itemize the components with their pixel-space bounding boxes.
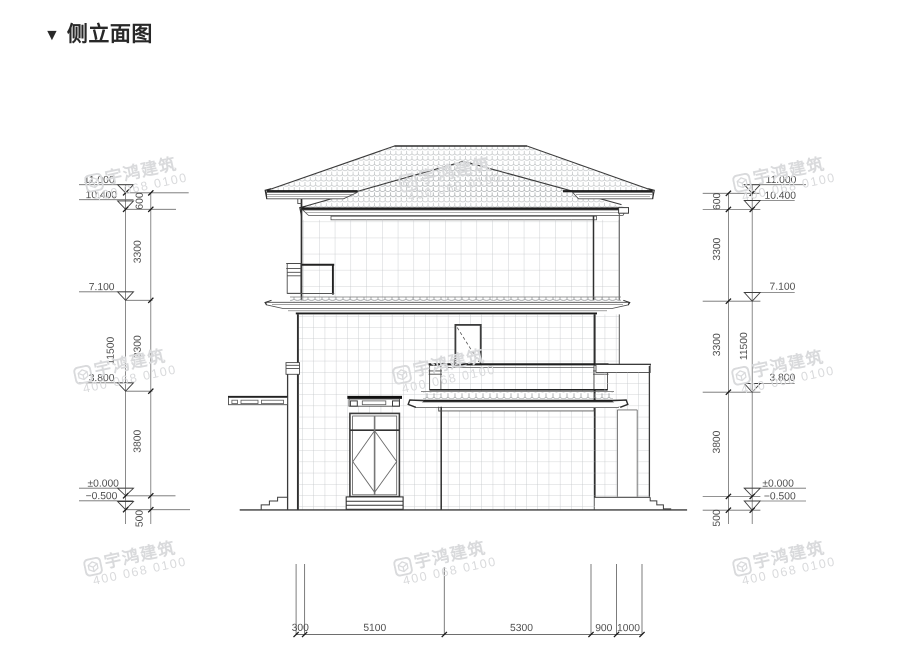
svg-text:3800: 3800 <box>133 430 144 453</box>
svg-text:3800: 3800 <box>712 430 723 453</box>
svg-text:±0.000: ±0.000 <box>762 479 794 490</box>
svg-text:±0.000: ±0.000 <box>87 479 119 490</box>
svg-text:600: 600 <box>712 193 723 210</box>
svg-text:500: 500 <box>712 509 723 526</box>
svg-text:3300: 3300 <box>712 237 723 260</box>
svg-text:−0.500: −0.500 <box>764 491 796 502</box>
svg-text:500: 500 <box>135 510 146 527</box>
svg-text:300: 300 <box>292 623 309 634</box>
svg-text:5100: 5100 <box>363 623 386 634</box>
svg-text:3300: 3300 <box>133 335 144 358</box>
svg-text:11500: 11500 <box>739 332 750 360</box>
svg-text:1000: 1000 <box>617 623 640 634</box>
svg-text:900: 900 <box>595 623 612 634</box>
svg-text:3300: 3300 <box>133 240 144 263</box>
svg-text:11.000: 11.000 <box>84 175 115 186</box>
svg-text:7.100: 7.100 <box>89 282 115 293</box>
svg-text:600: 600 <box>135 192 146 209</box>
svg-text:3300: 3300 <box>712 333 723 356</box>
svg-text:11500: 11500 <box>106 337 117 365</box>
svg-text:11.000: 11.000 <box>766 175 797 186</box>
svg-text:7.100: 7.100 <box>770 282 796 293</box>
svg-text:−0.500: −0.500 <box>86 491 118 502</box>
svg-text:10.400: 10.400 <box>764 191 796 202</box>
svg-text:10.400: 10.400 <box>86 190 118 201</box>
svg-text:3.800: 3.800 <box>769 373 795 384</box>
svg-text:3.800: 3.800 <box>89 373 115 384</box>
svg-text:5300: 5300 <box>510 623 533 634</box>
